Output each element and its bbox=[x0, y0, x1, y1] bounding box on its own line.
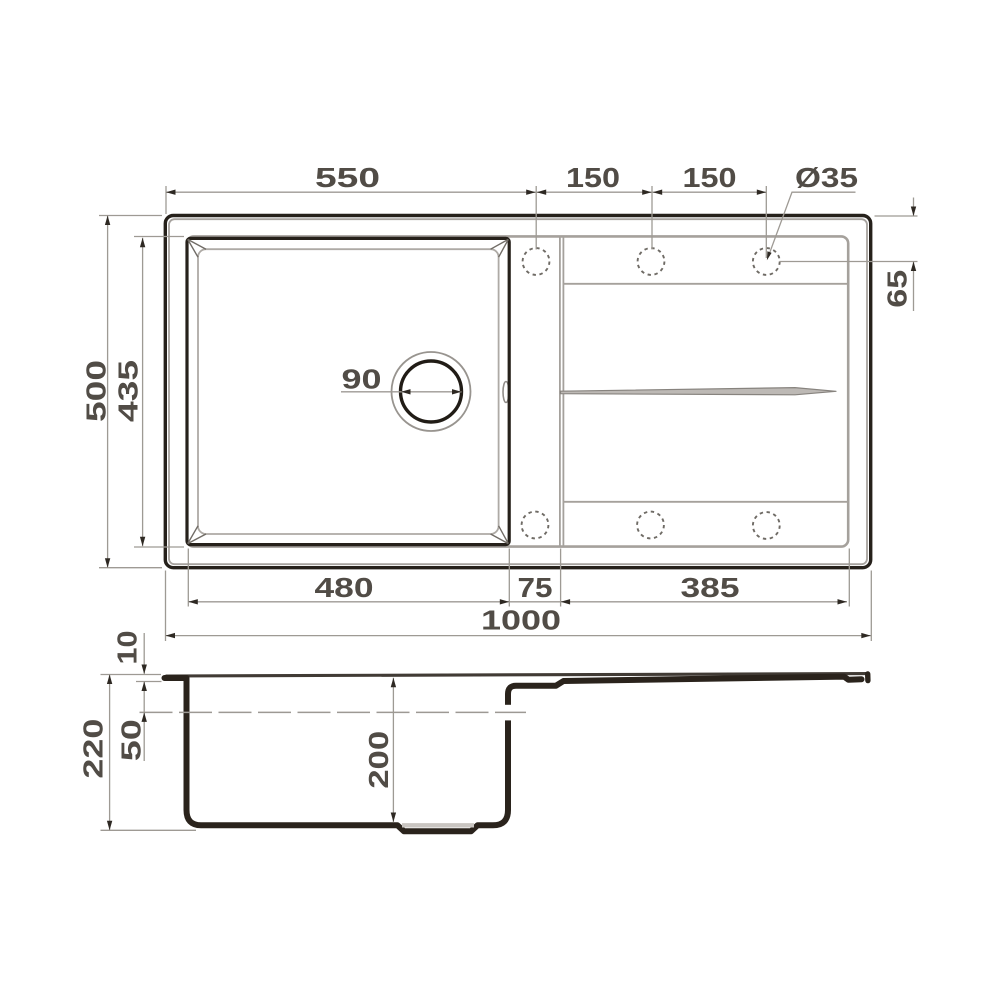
svg-text:385: 385 bbox=[681, 572, 740, 603]
svg-text:75: 75 bbox=[518, 572, 553, 603]
svg-text:480: 480 bbox=[315, 572, 374, 603]
svg-text:50: 50 bbox=[116, 719, 147, 761]
svg-text:220: 220 bbox=[78, 719, 109, 779]
svg-text:10: 10 bbox=[112, 631, 143, 665]
svg-text:550: 550 bbox=[315, 162, 380, 193]
svg-text:150: 150 bbox=[566, 162, 620, 193]
svg-text:1000: 1000 bbox=[481, 605, 561, 636]
svg-text:200: 200 bbox=[363, 731, 394, 789]
svg-text:90: 90 bbox=[342, 363, 382, 394]
svg-text:150: 150 bbox=[683, 162, 737, 193]
svg-text:Ø35: Ø35 bbox=[795, 162, 858, 193]
svg-text:65: 65 bbox=[882, 270, 913, 308]
svg-text:435: 435 bbox=[113, 360, 144, 422]
svg-text:500: 500 bbox=[81, 360, 112, 422]
